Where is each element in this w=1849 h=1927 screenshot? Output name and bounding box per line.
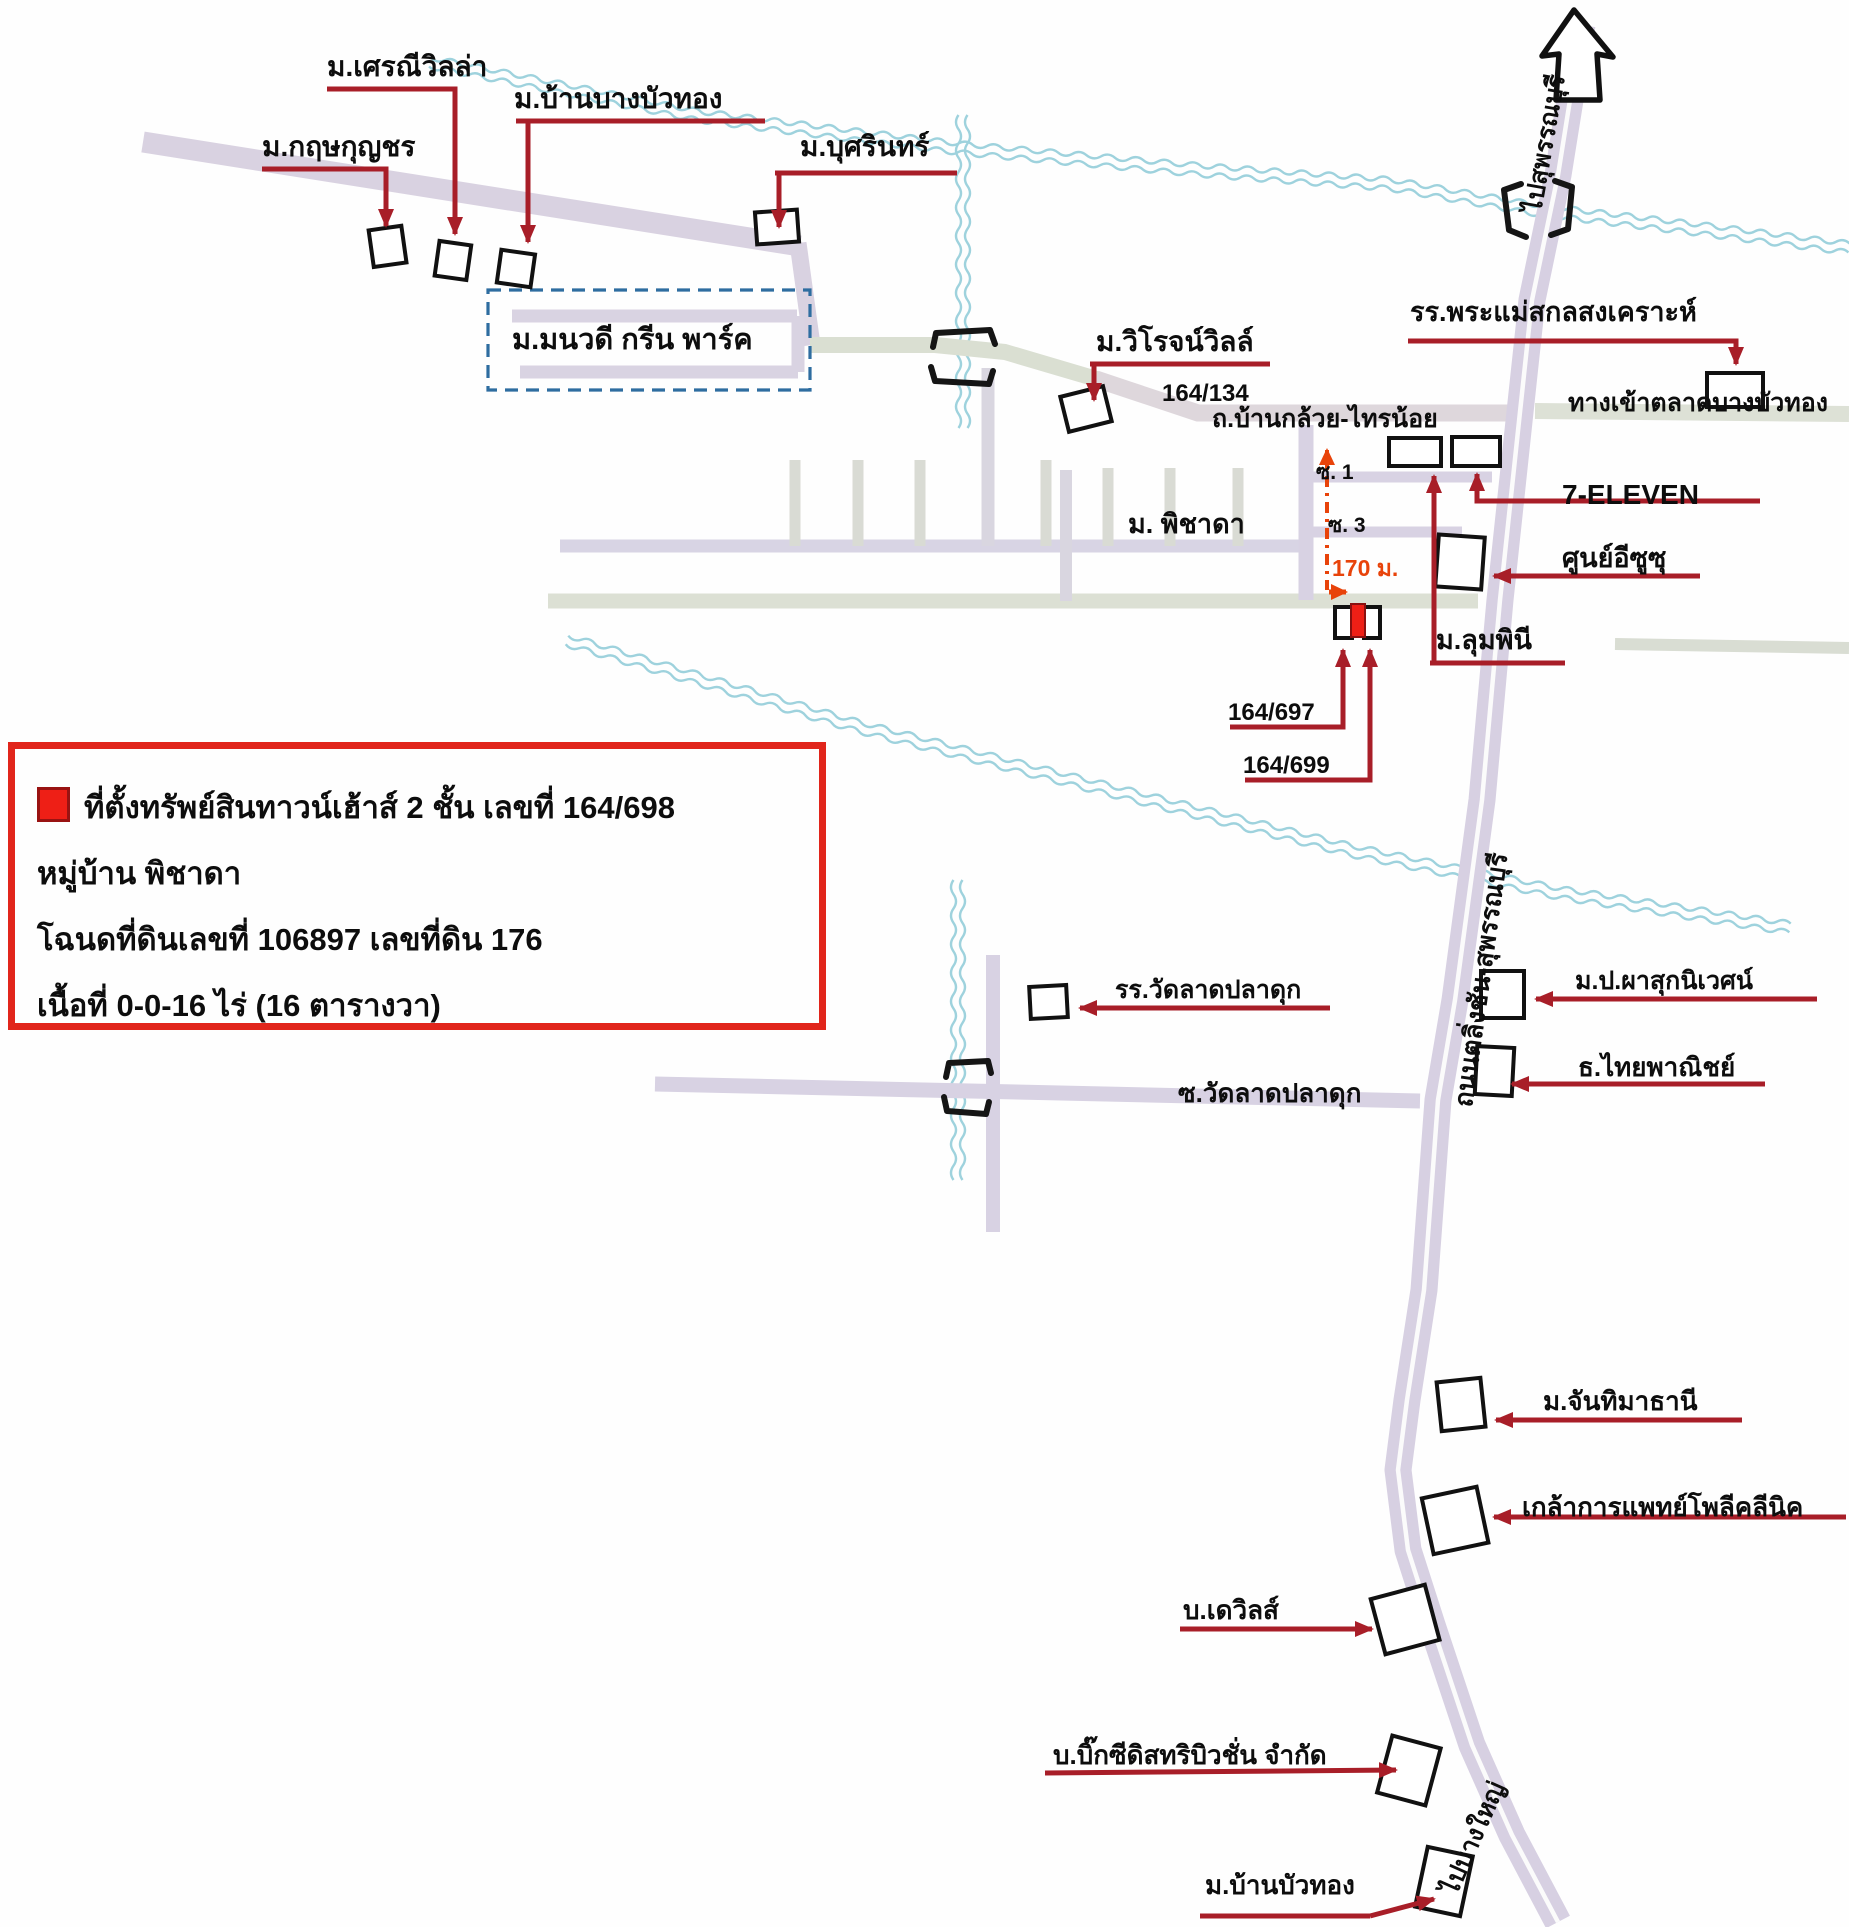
label-seranee-villa: ม.เศรณีวิลล่า [327,52,487,81]
label-house-697: 164/697 [1228,700,1315,725]
label-distance-170m: 170 ม. [1332,556,1398,580]
road-east-stub [1615,644,1849,648]
canal-wave [960,880,965,1180]
road-bankluai-west [810,345,1100,380]
property-marker-swatch [37,787,70,822]
legend-line-2: หมู่บ้าน พิชาดา [37,841,819,907]
label-market-entrance: ทางเข้าตลาดบางบัวทอง [1568,390,1828,416]
label-isuzu-center: ศูนย์อีซูซุ [1562,544,1666,572]
label-soi-watlat: ซ.วัดลาดปลาดุก [1178,1080,1361,1107]
building-klao [1422,1487,1489,1554]
label-klao-clinic: เกล้าการแพทย์โพลีคลีนิค [1522,1494,1803,1521]
location-map: ม.เศรณีวิลล่า ม.กฤษกุญชร ม.บ้านบางบัวทอง… [0,0,1849,1927]
legend-box: ที่ตั้งทรัพย์สินทาวน์เฮ้าส์ 2 ชั้น เลขที… [8,742,826,1030]
label-scb-bank: ธ.ไทยพาณิชย์ [1578,1054,1735,1081]
building-isuzu [1435,534,1485,589]
label-seven-eleven: 7-ELEVEN [1562,480,1699,509]
building-wirot [1060,386,1111,432]
label-pramae-school: รร.พระแม่สกลสงเคราะห์ [1410,298,1697,326]
legend-line-3: โฉนดที่ดินเลขที่ 106897 เลขที่ดิน 176 [37,907,819,973]
property-marker [1335,604,1380,638]
label-house-699: 164/699 [1243,753,1330,778]
building-markers [369,210,1763,1917]
label-monwadee-green-park: ม.มนวดี กรีน พาร์ค [512,325,753,355]
building-baanbang [497,250,535,287]
legend-line-1-text: ที่ตั้งทรัพย์สินทาวน์เฮ้าส์ 2 ชั้น เลขที… [84,790,675,825]
label-baanbuathong: ม.บ้านบัวทอง [1205,1872,1355,1899]
label-baan-bangbuathong: ม.บ้านบางบัวทอง [514,84,722,113]
label-lumpini: ม.ลุมพินี [1436,626,1532,654]
building-seven [1452,437,1500,466]
property-unit-left [1335,607,1352,638]
building-watlat-school [1029,985,1068,1019]
leader-pramae [1408,341,1736,364]
leader-bigc [1045,1770,1396,1773]
label-wirot-ville: ม.วิโรจน์วิลล์ [1096,327,1254,356]
label-devils: บ.เดวิลส์ [1183,1597,1279,1624]
label-chanthima: ม.จันทิมาธานี [1543,1388,1698,1415]
label-watlat-school: รร.วัดลาดปลาดุก [1115,977,1301,1003]
label-house-134: 164/134 [1162,381,1249,406]
label-road-bankluai: ถ.บ้านกล้วย-ไทรน้อย [1212,406,1438,432]
canal-wave [951,880,956,1180]
property-subject-unit [1351,604,1365,637]
road-top-left-diagonal [143,142,800,246]
label-phasuk-niwet: ม.ป.ผาสุกนิเวศน์ [1575,968,1753,994]
label-busarin: ม.บุศรินทร์ [800,132,929,161]
legend-line-4: เนื้อที่ 0-0-16 ไร่ (16 ตารางวา) [37,973,819,1039]
label-bigc: บ.บิ๊กซีดิสทริบิวชั่น จำกัด [1053,1742,1327,1769]
label-pichada: ม. พิชาดา [1128,510,1245,538]
building-krit [369,226,407,267]
building-chanthima [1437,1378,1486,1431]
label-soi-1: ซ. 1 [1316,462,1354,484]
building-lumpini [1389,438,1441,466]
label-soi-3: ซ. 3 [1328,515,1366,537]
property-unit-right [1364,607,1380,638]
building-devils [1371,1585,1440,1655]
label-krit-kunchorn: ม.กฤษกุญชร [262,132,415,161]
building-seranee [435,241,472,280]
legend-line-1: ที่ตั้งทรัพย์สินทาวน์เฮ้าส์ 2 ชั้น เลขที… [37,775,819,841]
